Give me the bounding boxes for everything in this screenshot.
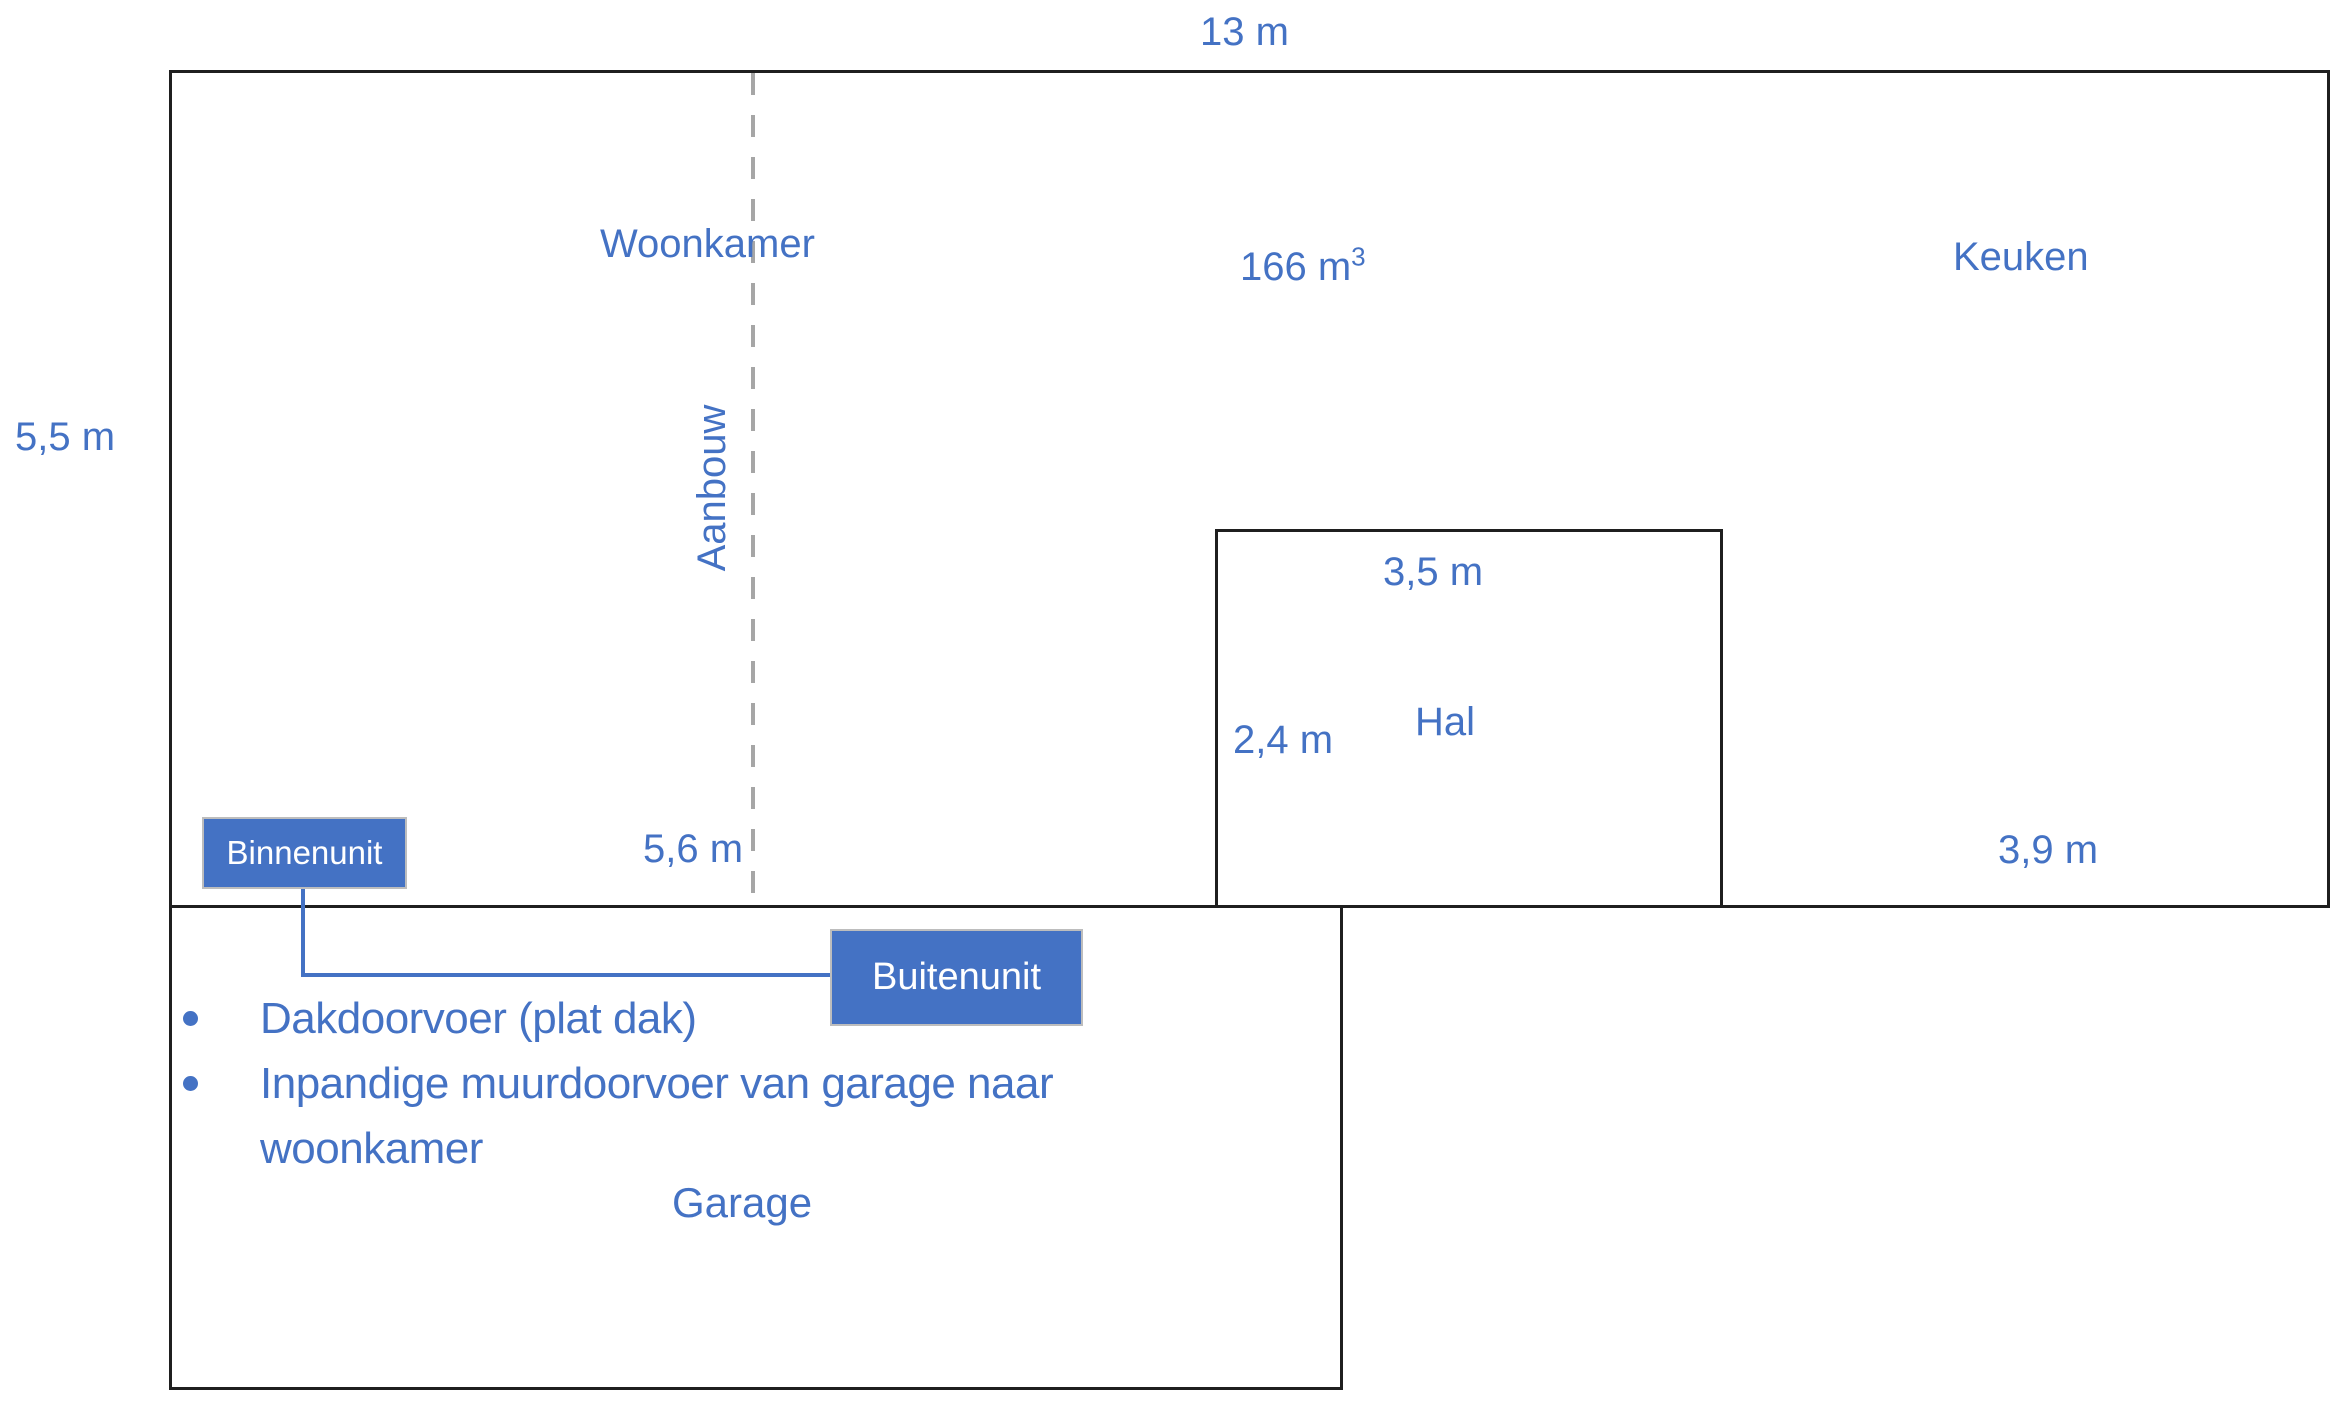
aanbouw-divider-dashed-line bbox=[751, 73, 755, 906]
unit-connector-line-vertical bbox=[301, 888, 305, 977]
room-label-garage: Garage bbox=[672, 1180, 812, 1226]
dimension-label-hal-width: 3,5 m bbox=[1383, 550, 1483, 594]
bullet-icon bbox=[183, 1011, 198, 1026]
room-label-hal: Hal bbox=[1415, 700, 1475, 744]
volume-label: 166 m3 bbox=[1240, 245, 1366, 289]
dimension-label-keuken-width: 3,9 m bbox=[1998, 828, 2098, 872]
dimension-label-left-height: 5,5 m bbox=[15, 415, 115, 459]
unit-connector-line-horizontal bbox=[301, 973, 832, 977]
room-label-keuken: Keuken bbox=[1953, 235, 2089, 279]
floor-plan-canvas: 13 m 5,5 m Woonkamer Aanbouw 166 m3 Keuk… bbox=[0, 0, 2347, 1409]
binnenunit-label: Binnenunit bbox=[227, 834, 383, 872]
room-label-aanbouw: Aanbouw bbox=[690, 405, 734, 572]
dimension-label-aanbouw-width: 5,6 m bbox=[643, 827, 743, 871]
volume-exponent: 3 bbox=[1351, 242, 1365, 272]
note-line: Dakdoorvoer (plat dak) bbox=[260, 986, 697, 1051]
volume-value: 166 m bbox=[1240, 245, 1351, 289]
note-item-dakdoorvoer: Dakdoorvoer (plat dak) bbox=[183, 986, 1053, 1051]
bullet-icon bbox=[183, 1076, 198, 1091]
binnenunit-box: Binnenunit bbox=[202, 817, 407, 889]
note-line: Inpandige muurdoorvoer van garage naar bbox=[260, 1051, 1053, 1116]
dimension-label-hal-height: 2,4 m bbox=[1233, 718, 1333, 762]
note-line: woonkamer bbox=[260, 1116, 1053, 1181]
notes-list: Dakdoorvoer (plat dak) Inpandige muurdoo… bbox=[183, 986, 1053, 1181]
note-item-muurdoorvoer: Inpandige muurdoorvoer van garage naar w… bbox=[183, 1051, 1053, 1181]
dimension-label-top-width: 13 m bbox=[1200, 10, 1289, 54]
room-label-woonkamer: Woonkamer bbox=[600, 222, 815, 266]
